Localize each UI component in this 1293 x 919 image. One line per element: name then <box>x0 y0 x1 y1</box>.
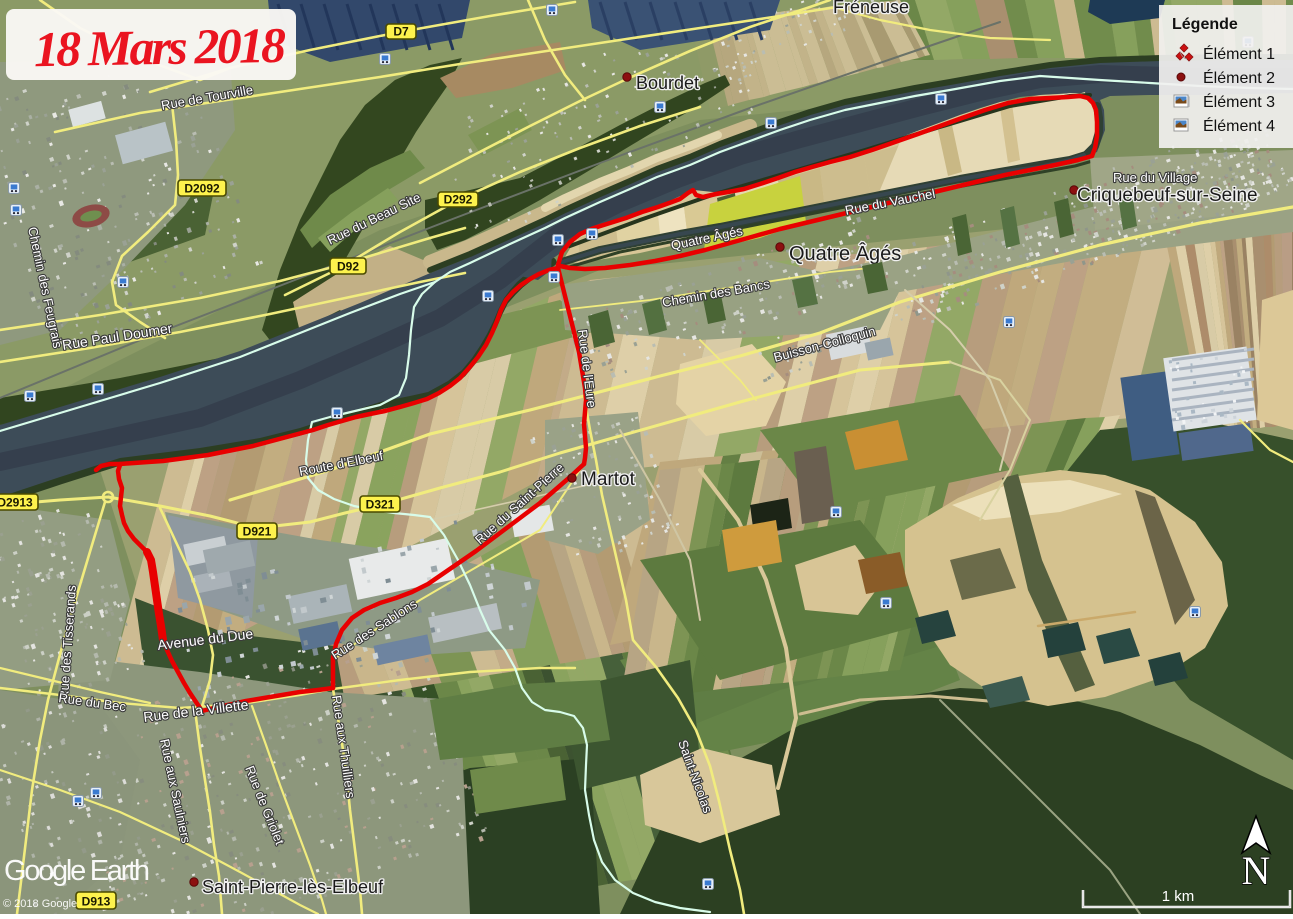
svg-text:Rue du Village: Rue du Village <box>1113 170 1197 185</box>
svg-text:18 Mars 2018: 18 Mars 2018 <box>33 17 286 77</box>
svg-text:Google Earth: Google Earth <box>4 855 150 887</box>
svg-text:D2913: D2913 <box>0 496 33 510</box>
svg-text:© 2018 Google: © 2018 Google <box>3 898 77 910</box>
svg-text:1 km: 1 km <box>1162 888 1195 905</box>
svg-text:Légende: Légende <box>1172 16 1238 33</box>
svg-text:Saint-Pierre-lès-Elbeuf: Saint-Pierre-lès-Elbeuf <box>202 877 384 897</box>
svg-text:D2092: D2092 <box>184 182 220 196</box>
svg-text:N: N <box>1242 848 1271 893</box>
svg-text:Élément 2: Élément 2 <box>1203 68 1275 87</box>
svg-text:Élément 1: Élément 1 <box>1203 44 1275 63</box>
svg-text:Criquebeuf-sur-Seine: Criquebeuf-sur-Seine <box>1077 185 1258 206</box>
svg-text:D7: D7 <box>393 25 409 39</box>
svg-text:Bourdet: Bourdet <box>636 73 699 93</box>
svg-text:D921: D921 <box>243 525 272 539</box>
svg-text:D913: D913 <box>82 895 111 909</box>
svg-text:Quatre Âgés: Quatre Âgés <box>789 242 901 265</box>
svg-text:Martot: Martot <box>581 469 636 490</box>
svg-text:D92: D92 <box>337 260 359 274</box>
svg-text:Élément 3: Élément 3 <box>1203 92 1275 111</box>
svg-text:Fréneuse: Fréneuse <box>833 0 909 17</box>
svg-text:D321: D321 <box>366 498 395 512</box>
svg-text:Élément 4: Élément 4 <box>1203 116 1275 135</box>
svg-text:D292: D292 <box>444 193 473 207</box>
